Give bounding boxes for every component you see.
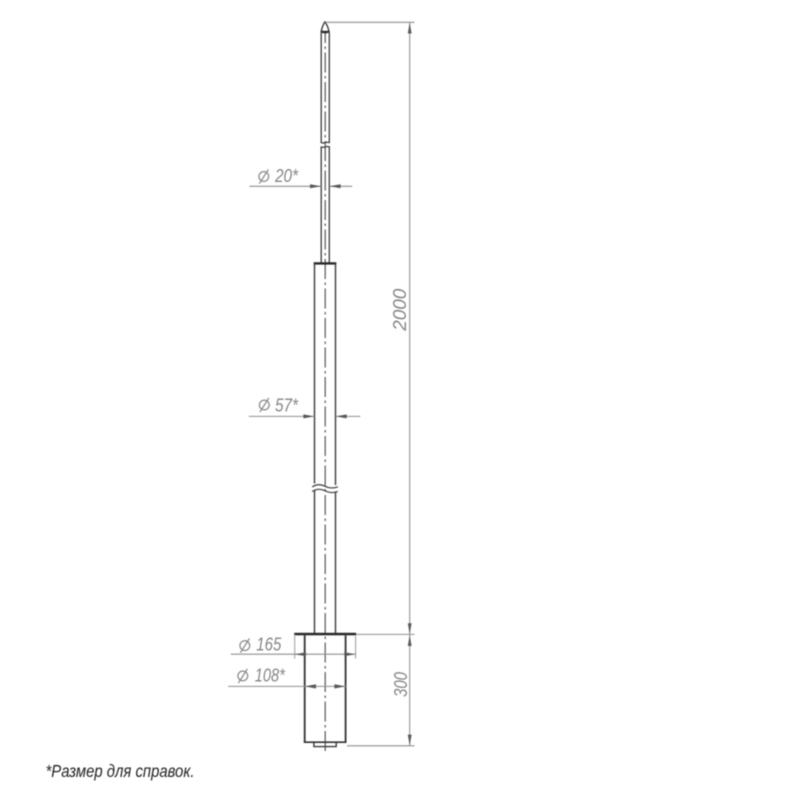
svg-text:*Размер для справок.: *Размер для справок.	[46, 761, 195, 781]
svg-text:108*: 108*	[255, 665, 286, 685]
svg-text:2000: 2000	[390, 289, 410, 332]
svg-text:20*: 20*	[274, 166, 299, 186]
svg-text:300: 300	[391, 672, 411, 697]
svg-text:57*: 57*	[275, 395, 299, 415]
svg-text:165: 165	[256, 634, 282, 654]
